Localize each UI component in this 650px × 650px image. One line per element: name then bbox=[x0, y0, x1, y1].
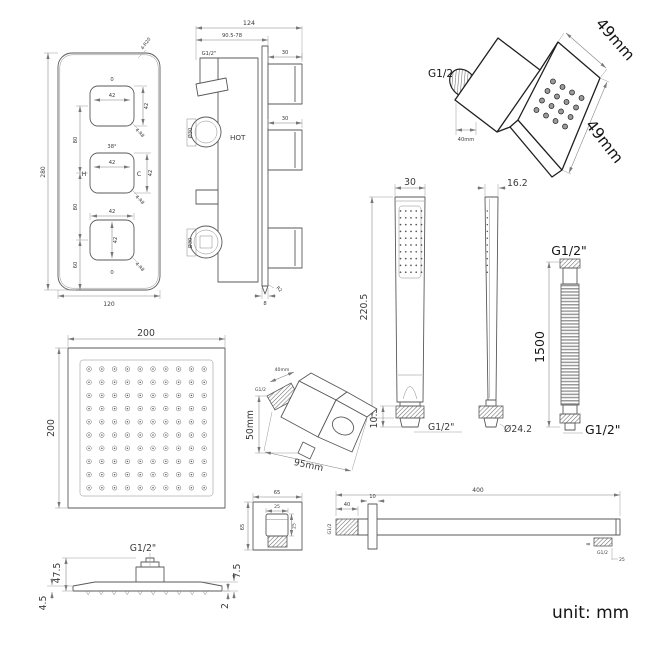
nozzle-dot bbox=[400, 251, 402, 253]
wall-plate-height-dim: 65 bbox=[240, 524, 246, 531]
valve-knob-side-top bbox=[191, 117, 221, 147]
nozzle-dot bbox=[152, 395, 154, 397]
nozzle-dot bbox=[152, 434, 154, 436]
nozzle-dot bbox=[421, 217, 423, 219]
nozzle-dot bbox=[88, 474, 90, 476]
nozzle-dot bbox=[127, 395, 128, 397]
arm-flange bbox=[368, 504, 377, 549]
nozzle-dot bbox=[127, 408, 128, 410]
nozzle-dot bbox=[114, 395, 116, 397]
nozzle-dot bbox=[421, 244, 423, 246]
arm-length-dim: 400 bbox=[472, 487, 484, 494]
nozzle-dot bbox=[487, 217, 489, 219]
hose-bottom-nut bbox=[560, 414, 580, 423]
rain-head-nozzle-ticks bbox=[86, 591, 207, 595]
nozzle-dot bbox=[152, 421, 154, 423]
knob-top-position: 0 bbox=[110, 77, 113, 83]
nozzle-dot bbox=[405, 224, 407, 226]
nozzle-dot bbox=[410, 237, 412, 239]
nozzle-dot bbox=[88, 487, 90, 489]
nozzle-dot bbox=[139, 447, 141, 449]
elbow-outlet bbox=[298, 442, 315, 459]
nozzle-dot bbox=[487, 244, 489, 246]
nozzle-dot bbox=[405, 231, 407, 233]
valve-depth-total: 124 bbox=[243, 19, 255, 27]
nozzle-dot bbox=[203, 447, 205, 449]
hand-shower-width-dim: 30 bbox=[404, 177, 416, 188]
rain-head-top-view: 200 200 bbox=[46, 328, 225, 508]
nozzle-dot bbox=[410, 224, 412, 226]
body-jet-width-dim: 49mm bbox=[592, 15, 638, 64]
nozzle-dot bbox=[405, 271, 407, 273]
nozzle-dot bbox=[88, 395, 90, 397]
knob-dia-bottom: Ø30 bbox=[187, 238, 194, 249]
nozzle-dot bbox=[191, 368, 193, 370]
knob-top-width: 42 bbox=[109, 93, 116, 99]
arm-tip-nipple bbox=[594, 538, 612, 546]
nozzle-dot bbox=[203, 381, 205, 383]
elbow-thread-label: G1/2 bbox=[255, 387, 266, 393]
nozzle-dot bbox=[165, 434, 167, 436]
nozzle-dot bbox=[101, 447, 103, 449]
nozzle-dot bbox=[101, 395, 103, 397]
nozzle-dot bbox=[421, 231, 423, 233]
nozzle-dot bbox=[152, 381, 154, 383]
nozzle-dot bbox=[165, 408, 167, 410]
hand-shower-side-collar bbox=[479, 406, 503, 418]
arm-tube bbox=[358, 519, 620, 535]
nozzle-dot bbox=[415, 251, 417, 253]
nozzle-dot bbox=[114, 381, 116, 383]
plate-corner-radius: R2 bbox=[275, 285, 284, 294]
elbow-height-dim: 50mm bbox=[245, 410, 256, 440]
knob-bottom-width: 42 bbox=[109, 209, 116, 215]
nozzle-dot bbox=[165, 421, 167, 423]
wall-plate-view: 65 65 25 25 bbox=[240, 490, 302, 550]
nozzle-dot bbox=[165, 381, 167, 383]
nozzle-dot bbox=[487, 231, 489, 233]
rain-head-edge-dim: 4.5 bbox=[38, 596, 49, 611]
hand-shower-thread-label: G1/2" bbox=[428, 422, 454, 433]
nozzle-dot bbox=[152, 474, 154, 476]
valve-knob-top bbox=[90, 86, 134, 126]
body-jet-thread-label: G1/2 bbox=[428, 68, 453, 80]
nozzle-dot bbox=[410, 244, 412, 246]
nozzle-dot bbox=[203, 487, 205, 489]
nozzle-dot bbox=[152, 461, 154, 463]
nozzle-dot bbox=[487, 224, 489, 226]
nozzle-dot bbox=[101, 487, 103, 489]
valve-knob-middle bbox=[90, 153, 134, 193]
nozzle-dot bbox=[203, 395, 205, 397]
nozzle-dot bbox=[203, 408, 205, 410]
nozzle-dot bbox=[400, 271, 402, 273]
hand-shower-thread-collar bbox=[396, 406, 424, 418]
rain-head-side-view: G1/2" 47.5 4.5 7.5 2 bbox=[38, 543, 243, 610]
nozzle-dot bbox=[400, 237, 402, 239]
unit-note: unit: mm bbox=[552, 603, 629, 623]
valve-knob-side-bottom bbox=[190, 226, 222, 258]
nozzle-dot bbox=[178, 381, 180, 383]
nozzle-dot bbox=[400, 224, 402, 226]
nozzle-dot bbox=[405, 244, 407, 246]
hot-marking: HOT bbox=[230, 133, 246, 142]
nozzle-dot bbox=[400, 265, 402, 267]
nozzle-dot bbox=[415, 237, 417, 239]
nozzle-dot bbox=[165, 395, 167, 397]
knob-dia-top: Ø30 bbox=[187, 128, 194, 139]
nozzle-dot bbox=[487, 210, 489, 212]
nozzle-dot bbox=[415, 210, 417, 212]
nozzle-dot bbox=[410, 231, 412, 233]
nozzle-dot bbox=[415, 224, 417, 226]
hose-length-dim: 1500 bbox=[532, 331, 547, 363]
nozzle-dot bbox=[165, 474, 167, 476]
body-jet-height-dim: 49mm bbox=[582, 116, 627, 166]
rain-head-body-thickness-dim: 7.5 bbox=[232, 564, 243, 579]
hand-shower-side-body bbox=[485, 197, 498, 400]
nozzle-dot bbox=[178, 434, 180, 436]
nozzle-dot bbox=[101, 421, 103, 423]
nozzle-dot bbox=[165, 487, 167, 489]
knob-bottom-position: 0 bbox=[110, 270, 113, 276]
hose-top-nut bbox=[560, 259, 580, 268]
nozzle-dot bbox=[191, 381, 193, 383]
nozzle-dot bbox=[88, 421, 90, 423]
nozzle-dot bbox=[114, 461, 116, 463]
arm-thread-label: G1/2 bbox=[327, 523, 333, 534]
nozzle-dot bbox=[139, 421, 141, 423]
hand-shower-length-dim: 220.5 bbox=[359, 294, 370, 321]
knob-bottom-height: 42 bbox=[113, 237, 119, 244]
nozzle-dot bbox=[410, 217, 412, 219]
nozzle-dot bbox=[127, 487, 128, 489]
nozzle-dot bbox=[178, 461, 180, 463]
stem-length-mid: 30 bbox=[282, 116, 289, 122]
nozzle-dot bbox=[191, 487, 193, 489]
panel-corner-radius: 4-R20 bbox=[140, 36, 153, 51]
rain-head-lip-dim: 2 bbox=[220, 603, 231, 609]
valve-stem-middle bbox=[268, 130, 302, 170]
nozzle-dot bbox=[203, 434, 205, 436]
rain-head-plate bbox=[68, 348, 225, 508]
spec-sheet: 0 42 42 4-R8 38° 42 H C 42 4-R8 42 42 0 … bbox=[0, 0, 650, 650]
nozzle-dot bbox=[421, 258, 423, 260]
nozzle-dot bbox=[139, 487, 141, 489]
nozzle-dot bbox=[101, 461, 103, 463]
elbow-thread-length-dim: 40mm bbox=[275, 367, 290, 373]
valve-stem-bottom bbox=[268, 228, 302, 268]
nozzle-dot bbox=[139, 474, 141, 476]
wall-outlet-elbow-view: 40mm G1/2 50mm 95mm bbox=[245, 367, 377, 474]
nozzle-dot bbox=[165, 368, 167, 370]
cold-side-label: C bbox=[137, 170, 142, 178]
nozzle-dot bbox=[114, 408, 116, 410]
valve-front-view: 0 42 42 4-R8 38° 42 H C 42 4-R8 42 42 0 … bbox=[40, 36, 160, 308]
arm-thread bbox=[336, 519, 358, 535]
nozzle-dot bbox=[165, 461, 167, 463]
hose-top-thread-label: G1/2" bbox=[551, 243, 587, 258]
nozzle-dot bbox=[410, 210, 412, 212]
nozzle-dot bbox=[178, 368, 180, 370]
rain-head-depth-dim: 200 bbox=[46, 419, 57, 437]
nozzle-dot bbox=[139, 395, 141, 397]
nozzle-dot bbox=[178, 421, 180, 423]
nozzle-dot bbox=[101, 474, 103, 476]
nozzle-dot bbox=[415, 271, 417, 273]
nozzle-dot bbox=[405, 210, 407, 212]
nozzle-dot bbox=[114, 421, 116, 423]
nozzle-dot bbox=[405, 237, 407, 239]
wall-plate-thread bbox=[268, 536, 287, 547]
nozzle-dot bbox=[101, 381, 103, 383]
nozzle-dot bbox=[421, 224, 423, 226]
nozzle-dot bbox=[127, 368, 128, 370]
nozzle-dot bbox=[405, 251, 407, 253]
valve-body bbox=[218, 58, 258, 282]
nozzle-dot bbox=[410, 265, 412, 267]
nozzle-dot bbox=[400, 217, 402, 219]
nozzle-dot bbox=[191, 421, 193, 423]
nozzle-dot bbox=[101, 408, 103, 410]
rain-head-height-dim: 47.5 bbox=[52, 563, 63, 584]
nozzle-dot bbox=[178, 395, 180, 397]
knob-spacing-bottom: 60 bbox=[73, 262, 79, 269]
nozzle-dot bbox=[203, 461, 205, 463]
nozzle-dot bbox=[139, 368, 141, 370]
hand-shower-side-view: 16.2 Ø24.2 bbox=[477, 178, 532, 435]
nozzle-dot bbox=[487, 251, 489, 253]
nozzle-dot bbox=[405, 258, 407, 260]
panel-height-dim: 280 bbox=[40, 166, 47, 178]
nozzle-dot bbox=[191, 408, 193, 410]
nozzle-dot bbox=[487, 237, 489, 239]
knob-mid-angle: 38° bbox=[107, 144, 117, 150]
nozzle-dot bbox=[152, 447, 154, 449]
nozzle-dot bbox=[139, 408, 141, 410]
knob-mid-width: 42 bbox=[109, 160, 116, 166]
valve-depth-range: 90.5-78 bbox=[222, 33, 242, 39]
plate-thickness-dim: 8 bbox=[263, 301, 266, 307]
nozzle-dot bbox=[114, 474, 116, 476]
nozzle-dot bbox=[88, 461, 90, 463]
arm-tip-mark: 8 bbox=[586, 542, 592, 545]
nozzle-dot bbox=[415, 265, 417, 267]
nozzle-dot bbox=[415, 244, 417, 246]
nozzle-dot bbox=[400, 244, 402, 246]
hand-shower-body bbox=[395, 197, 425, 402]
nozzle-dot bbox=[421, 210, 423, 212]
nozzle-dot bbox=[114, 487, 116, 489]
nozzle-dot bbox=[421, 265, 423, 267]
nozzle-dot bbox=[178, 447, 180, 449]
rain-head-width-dim: 200 bbox=[137, 328, 155, 339]
nozzle-dot bbox=[203, 368, 205, 370]
hose-bottom-thread-label: G1/2" bbox=[585, 422, 621, 437]
nozzle-dot bbox=[415, 217, 417, 219]
nozzle-dot bbox=[405, 217, 407, 219]
shower-hose-view: G1/2" 1500 G1/2" bbox=[532, 243, 621, 437]
arm-thread-length-dim: 40 bbox=[344, 502, 351, 508]
nozzle-dot bbox=[165, 447, 167, 449]
nozzle-dot bbox=[139, 434, 141, 436]
nozzle-dot bbox=[415, 231, 417, 233]
plate-knob-height-dim: 25 bbox=[292, 523, 298, 529]
nozzle-dot bbox=[421, 271, 423, 273]
nozzle-dot bbox=[88, 408, 90, 410]
hot-side-label: H bbox=[82, 170, 87, 178]
knob-top-height: 42 bbox=[144, 103, 150, 110]
rain-head-connector bbox=[136, 567, 164, 582]
nozzle-dot bbox=[127, 434, 128, 436]
nozzle-dot bbox=[152, 487, 154, 489]
nozzle-dot bbox=[152, 408, 154, 410]
nozzle-dot bbox=[191, 474, 193, 476]
nozzle-dot bbox=[88, 434, 90, 436]
nozzle-dot bbox=[410, 251, 412, 253]
valve-inlet-thread: G1/2" bbox=[202, 51, 217, 57]
valve-stem-top bbox=[268, 64, 302, 104]
elbow-width-dim: 95mm bbox=[293, 457, 325, 474]
nozzle-dot bbox=[421, 251, 423, 253]
body-jet-depth-dim: 40mm bbox=[458, 137, 475, 143]
nozzle-dot bbox=[400, 258, 402, 260]
knob-spacing-mid: 80 bbox=[73, 204, 79, 211]
nozzle-dot bbox=[152, 368, 154, 370]
valve-wall-plate bbox=[262, 46, 268, 286]
nozzle-dot bbox=[88, 381, 90, 383]
nozzle-dot bbox=[178, 408, 180, 410]
valve-side-view: 124 90.5-78 G1/2" HOT 30 30 Ø30 Ø30 8 R2 bbox=[187, 19, 302, 307]
nozzle-dot bbox=[203, 474, 205, 476]
nozzle-dot bbox=[191, 395, 193, 397]
rain-head-profile bbox=[73, 582, 222, 591]
body-jet-view: G1/2 40mm 49mm 49mm bbox=[428, 15, 638, 177]
plate-knob-width-dim: 25 bbox=[274, 504, 280, 510]
nozzle-dot bbox=[88, 447, 90, 449]
nozzle-dot bbox=[400, 210, 402, 212]
nozzle-dot bbox=[127, 447, 128, 449]
nozzle-dot bbox=[410, 271, 412, 273]
nozzle-dot bbox=[410, 258, 412, 260]
stem-length-top: 30 bbox=[282, 50, 289, 56]
nozzle-dot bbox=[203, 421, 205, 423]
nozzle-dot bbox=[487, 265, 489, 267]
nozzle-dot bbox=[114, 434, 116, 436]
hand-shower-front-view: 30 220.5 10.5 G1/2" bbox=[359, 177, 462, 433]
wall-plate-knob bbox=[266, 514, 288, 536]
nozzle-dot bbox=[191, 434, 193, 436]
nozzle-dot bbox=[101, 434, 103, 436]
panel-width-dim: 120 bbox=[103, 301, 115, 308]
hose-coil bbox=[561, 284, 579, 405]
nozzle-dot bbox=[139, 381, 141, 383]
knob-spacing-top: 80 bbox=[73, 137, 79, 144]
arm-tip-thread-label: G1/2 bbox=[597, 550, 608, 556]
nozzle-dot bbox=[101, 368, 103, 370]
nozzle-dot bbox=[178, 474, 180, 476]
wall-plate-width-dim: 65 bbox=[274, 490, 281, 496]
arm-flange-thickness-dim: 10 bbox=[369, 494, 376, 500]
nozzle-dot bbox=[487, 258, 489, 260]
nozzle-dot bbox=[127, 461, 128, 463]
nozzle-dot bbox=[487, 271, 489, 273]
nozzle-dot bbox=[127, 421, 128, 423]
hand-shower-side-width-dim: 16.2 bbox=[507, 178, 528, 189]
nozzle-dot bbox=[114, 447, 116, 449]
nozzle-dot bbox=[400, 231, 402, 233]
nozzle-dot bbox=[139, 461, 141, 463]
nozzle-dot bbox=[421, 237, 423, 239]
nozzle-dot bbox=[405, 265, 407, 267]
hand-shower-collar-dia: Ø24.2 bbox=[504, 424, 532, 435]
nozzle-dot bbox=[114, 368, 116, 370]
technical-drawing-canvas: 0 42 42 4-R8 38° 42 H C 42 4-R8 42 42 0 … bbox=[0, 0, 650, 650]
nozzle-dot bbox=[191, 447, 193, 449]
knob-mid-height: 42 bbox=[148, 170, 154, 177]
nozzle-dot bbox=[127, 381, 128, 383]
nozzle-dot bbox=[415, 258, 417, 260]
nozzle-dot bbox=[88, 368, 90, 370]
nozzle-dot bbox=[127, 474, 128, 476]
arm-tip-length-dim: 25 bbox=[619, 557, 625, 563]
rain-head-thread-label: G1/2" bbox=[130, 543, 156, 554]
nozzle-dot bbox=[191, 461, 193, 463]
shower-arm-view: 400 40 G1/2 10 8 G1/2 25 bbox=[327, 487, 625, 563]
nozzle-dot bbox=[178, 487, 180, 489]
